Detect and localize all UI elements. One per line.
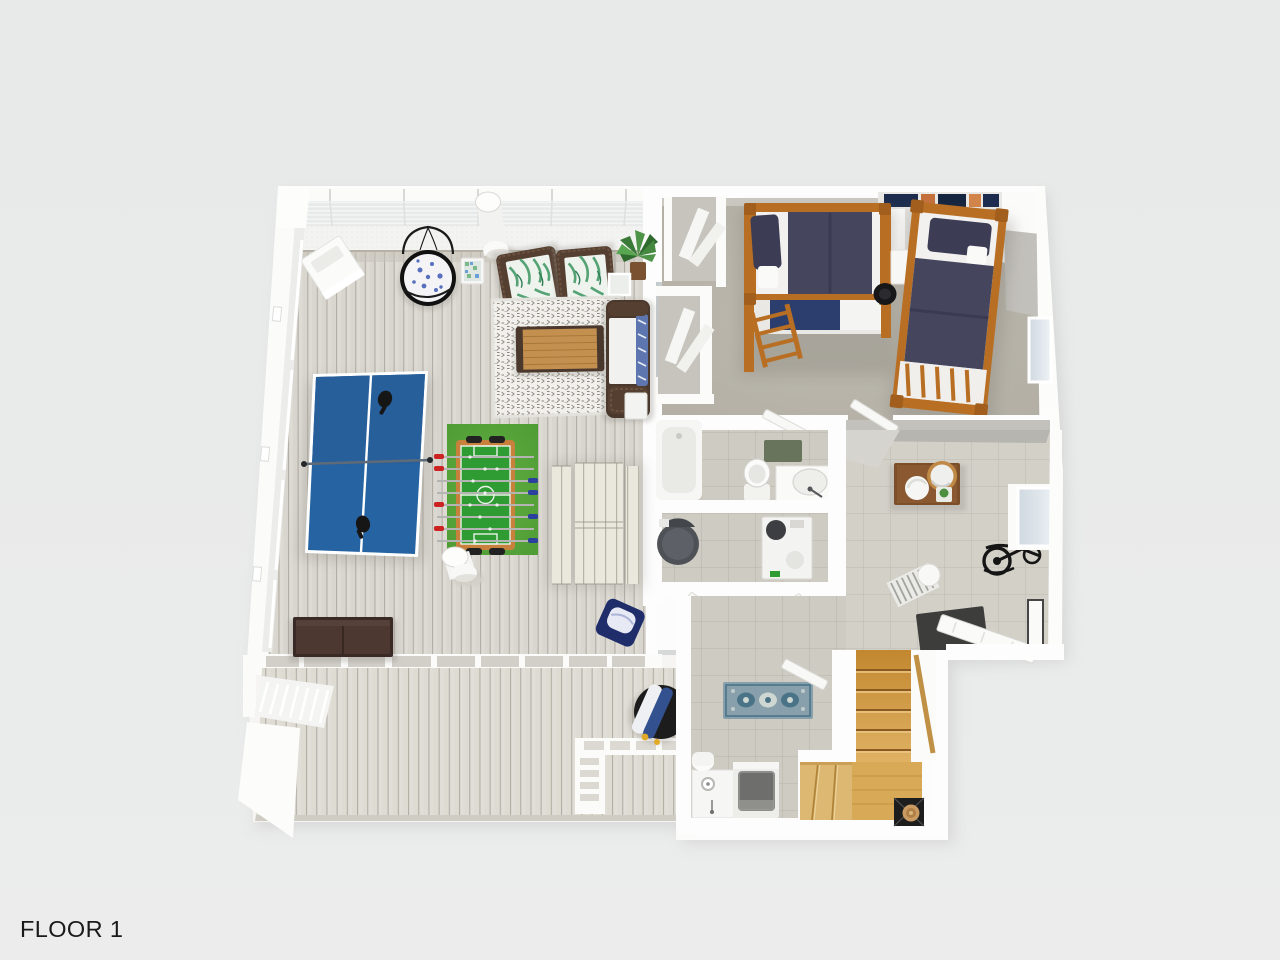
svg-text:FLOOR 1: FLOOR 1: [20, 916, 123, 942]
